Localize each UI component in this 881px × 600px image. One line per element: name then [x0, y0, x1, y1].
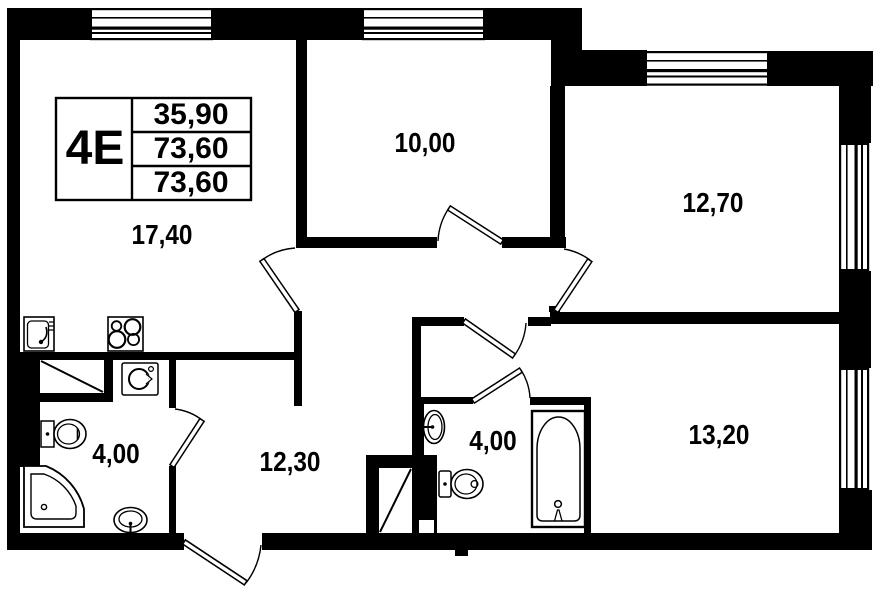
- svg-text:17,40: 17,40: [132, 218, 193, 250]
- svg-text:73,60: 73,60: [153, 132, 228, 165]
- svg-text:13,20: 13,20: [689, 418, 750, 450]
- svg-text:4,00: 4,00: [469, 424, 516, 456]
- svg-text:4,00: 4,00: [92, 437, 139, 469]
- svg-text:10,00: 10,00: [395, 126, 456, 158]
- svg-text:12,30: 12,30: [260, 445, 321, 477]
- svg-text:73,60: 73,60: [153, 166, 228, 199]
- svg-text:4E: 4E: [66, 122, 125, 175]
- svg-text:12,70: 12,70: [683, 186, 744, 218]
- svg-text:35,90: 35,90: [153, 98, 228, 131]
